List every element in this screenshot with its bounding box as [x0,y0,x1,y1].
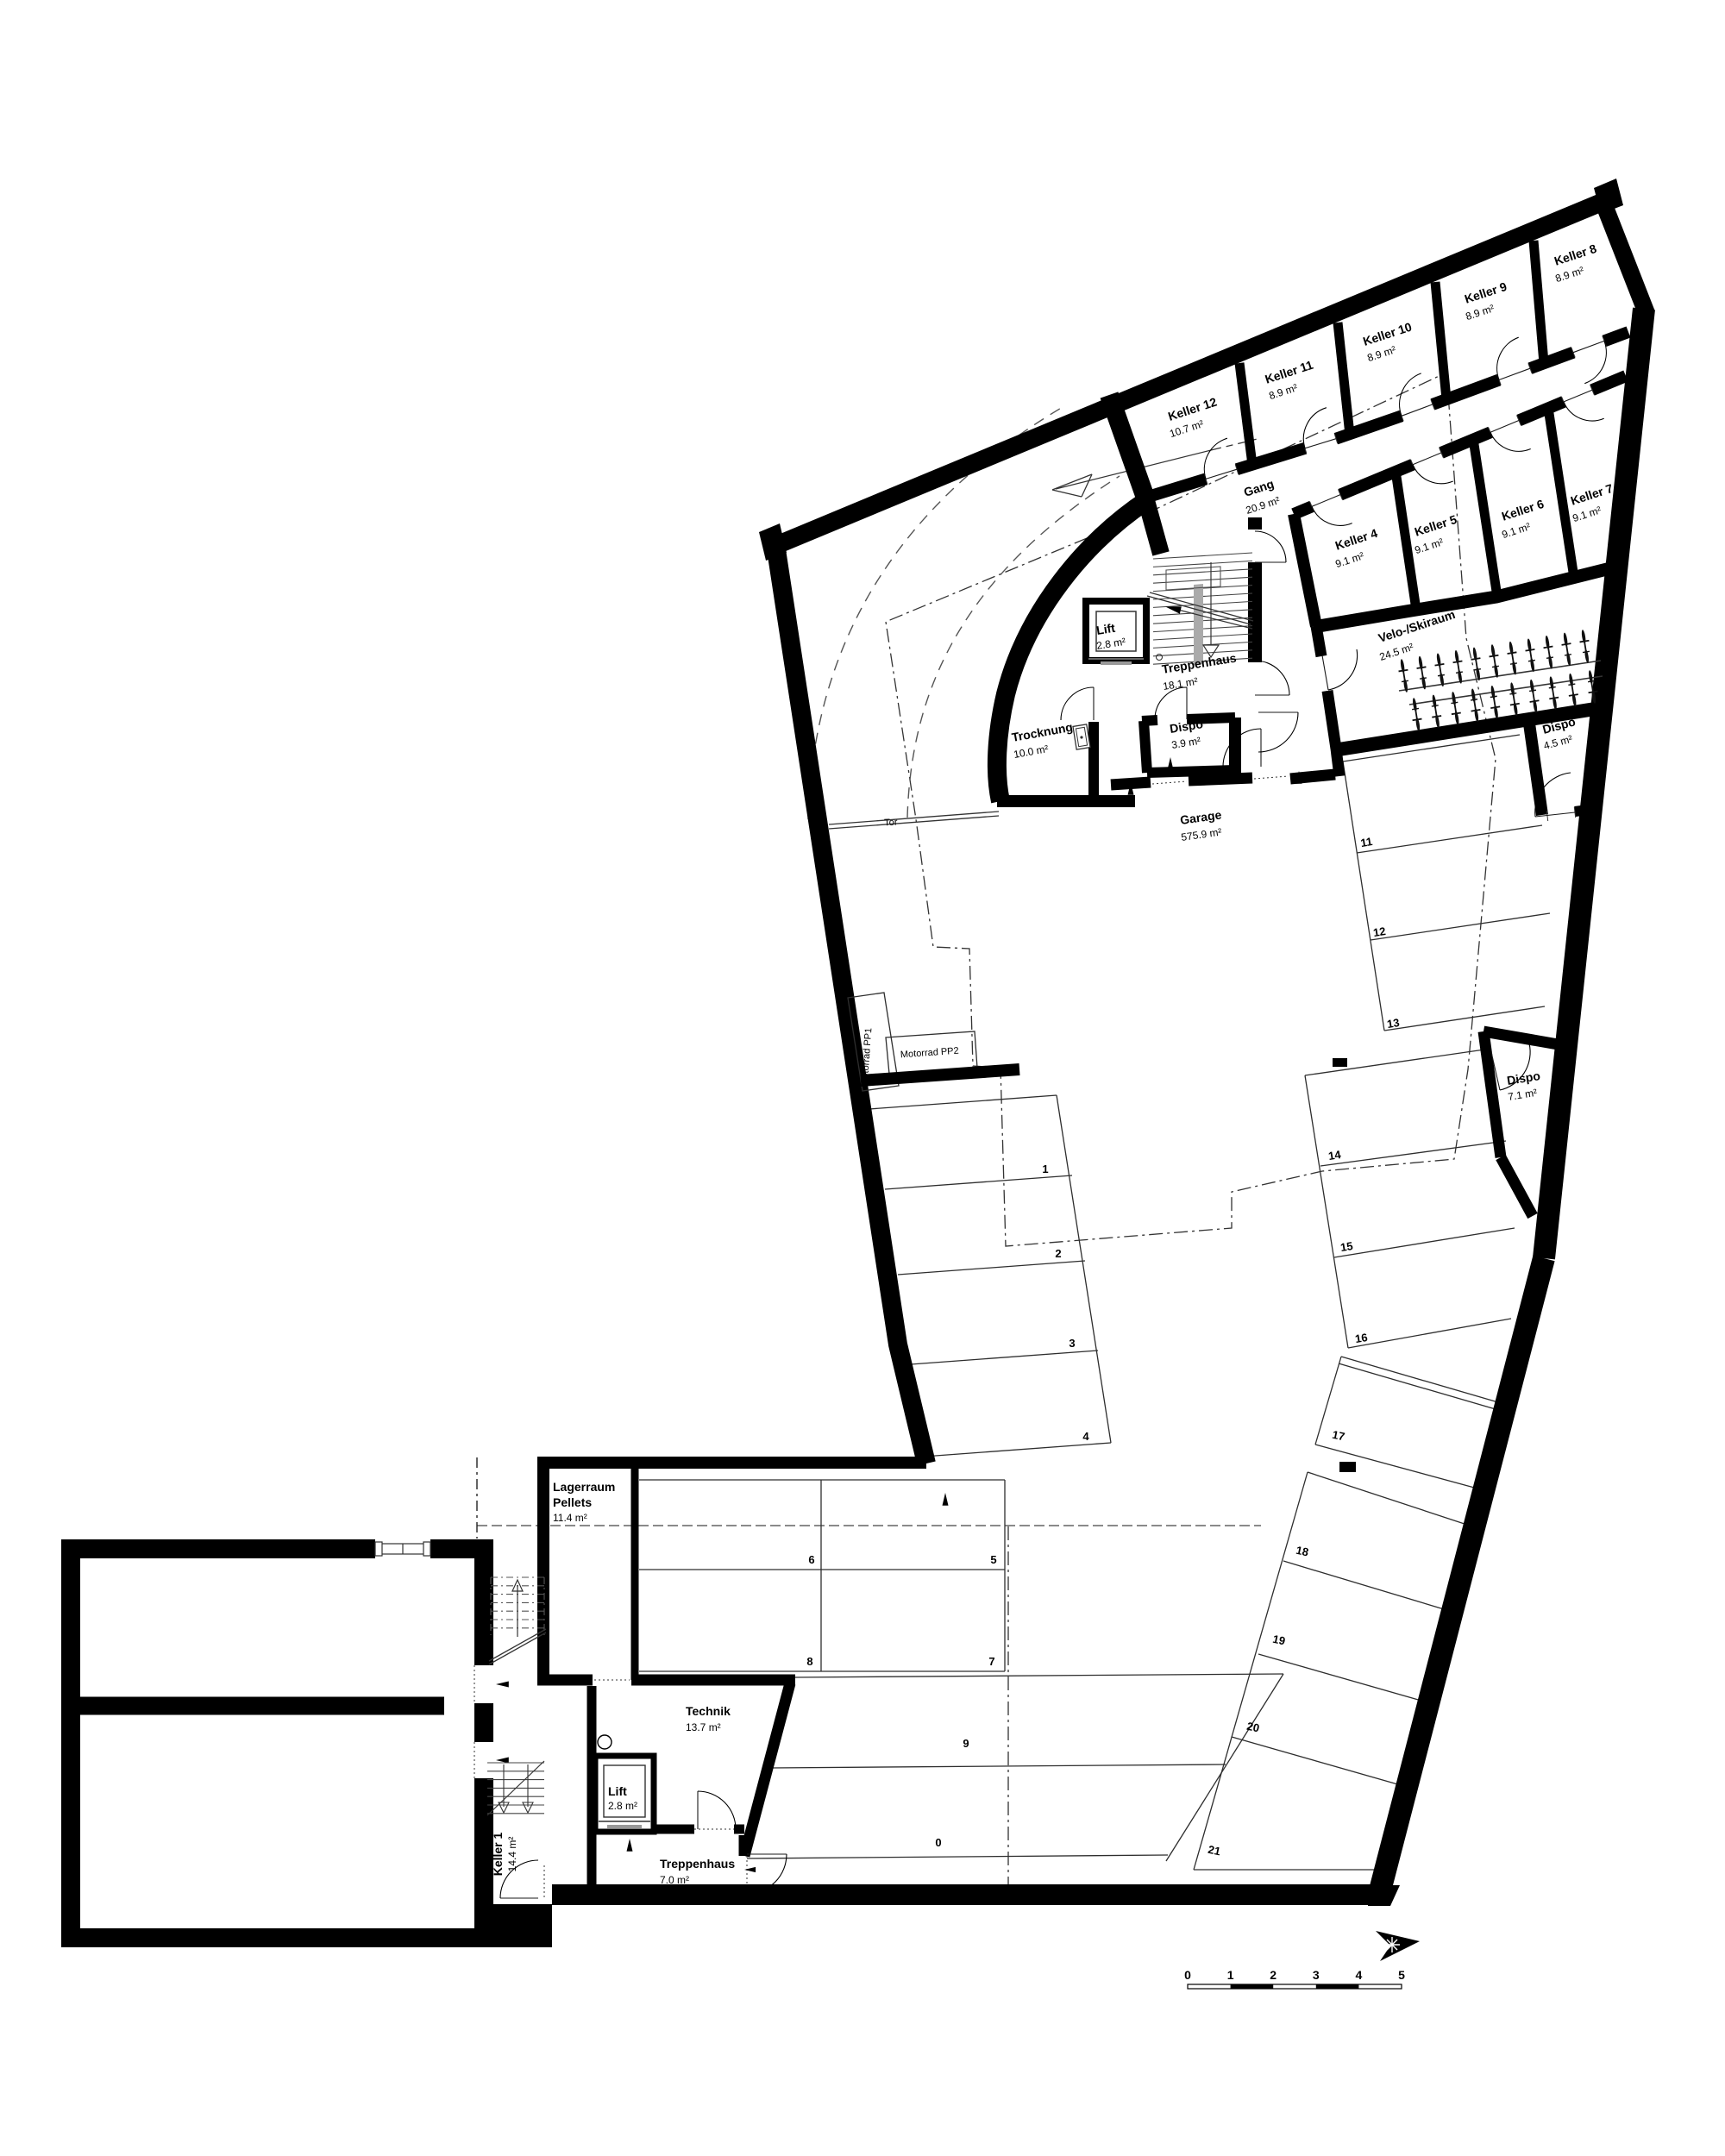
svg-text:Lagerraum: Lagerraum [553,1480,615,1494]
svg-text:Technik: Technik [686,1704,731,1718]
svg-text:5: 5 [1398,1968,1405,1982]
svg-text:Pellets: Pellets [553,1495,592,1509]
svg-text:13.7 m²: 13.7 m² [686,1721,721,1733]
svg-text:16: 16 [1354,1331,1369,1345]
svg-text:13: 13 [1386,1016,1401,1031]
svg-text:7: 7 [988,1655,994,1668]
svg-text:7.0 m²: 7.0 m² [660,1874,689,1886]
svg-text:19: 19 [1271,1633,1286,1648]
svg-text:2: 2 [1055,1247,1061,1260]
svg-text:15: 15 [1339,1239,1354,1254]
svg-text:20: 20 [1245,1720,1260,1735]
svg-text:0: 0 [935,1836,941,1849]
svg-text:14.4 m²: 14.4 m² [506,1837,518,1872]
svg-text:Tor: Tor [884,818,898,829]
svg-text:1: 1 [1227,1968,1234,1982]
svg-text:2: 2 [1270,1968,1276,1982]
svg-text:8: 8 [806,1655,812,1668]
svg-text:11.4 m²: 11.4 m² [553,1512,587,1524]
svg-text:17: 17 [1331,1428,1345,1444]
svg-text:9: 9 [963,1737,969,1750]
svg-text:3: 3 [1313,1968,1320,1982]
svg-text:11: 11 [1359,835,1373,849]
svg-text:6: 6 [808,1553,814,1566]
svg-text:18: 18 [1295,1544,1309,1559]
svg-text:0: 0 [1184,1968,1191,1982]
svg-text:12: 12 [1372,924,1387,939]
svg-text:1: 1 [1042,1163,1048,1175]
svg-text:Lift: Lift [608,1784,627,1798]
svg-text:2.8 m²: 2.8 m² [608,1800,637,1812]
svg-text:21: 21 [1207,1843,1221,1858]
svg-text:3: 3 [1069,1337,1075,1350]
svg-text:Keller 1: Keller 1 [491,1832,505,1876]
svg-text:Treppenhaus: Treppenhaus [660,1857,735,1871]
svg-text:4: 4 [1082,1430,1089,1443]
svg-text:4: 4 [1356,1968,1363,1982]
svg-text:5: 5 [990,1553,996,1566]
svg-text:Lift: Lift [1095,621,1116,637]
